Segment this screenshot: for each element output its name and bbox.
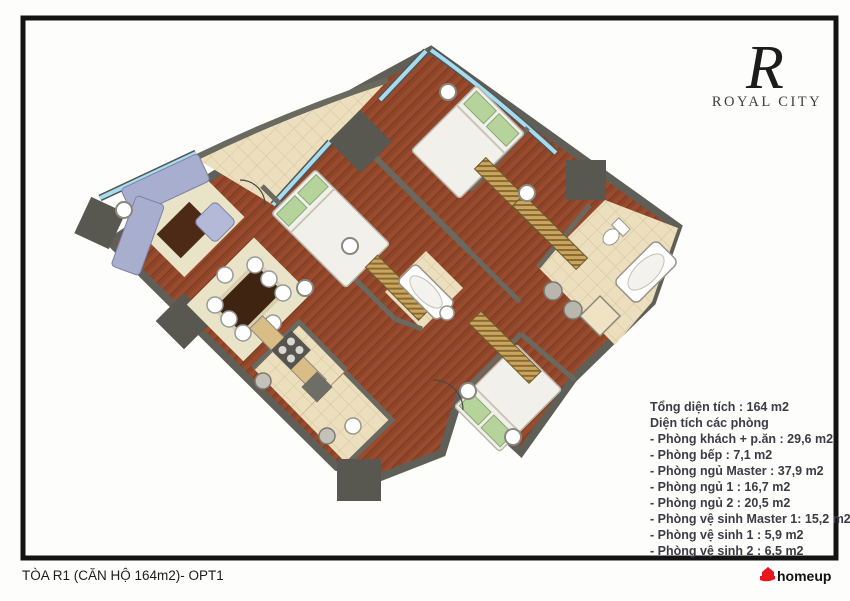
svg-text:- Phòng khách + p.ăn : 29,6 m2: - Phòng khách + p.ăn : 29,6 m2 bbox=[650, 432, 833, 446]
svg-text:- Phòng vệ sinh 1 : 5,9 m2: - Phòng vệ sinh 1 : 5,9 m2 bbox=[650, 528, 804, 542]
svg-text:R: R bbox=[745, 34, 784, 102]
svg-text:- Phòng ngủ Master : 37,9 m2: - Phòng ngủ Master : 37,9 m2 bbox=[650, 464, 824, 478]
svg-text:Diện tích các phòng: Diện tích các phòng bbox=[650, 416, 769, 430]
svg-text:- Phòng vệ sinh Master 1: 15,2: - Phòng vệ sinh Master 1: 15,2 m2 bbox=[650, 512, 850, 526]
svg-text:- Phòng ngủ 2 : 20,5 m2: - Phòng ngủ 2 : 20,5 m2 bbox=[650, 496, 790, 510]
svg-text:- Phòng ngủ 1 : 16,7 m2: - Phòng ngủ 1 : 16,7 m2 bbox=[650, 480, 790, 494]
svg-text:Tổng diện tích : 164 m2: Tổng diện tích : 164 m2 bbox=[650, 400, 789, 414]
svg-text:- Phòng bếp : 7,1 m2: - Phòng bếp : 7,1 m2 bbox=[650, 448, 772, 462]
svg-text:- Phòng vệ sinh 2 : 6,5 m2: - Phòng vệ sinh 2 : 6,5 m2 bbox=[650, 544, 804, 558]
svg-text:homeup: homeup bbox=[777, 568, 831, 584]
svg-text:ROYAL CITY: ROYAL CITY bbox=[712, 94, 822, 110]
svg-text:TÒA R1 (CĂN HỘ 164m2)- OPT1: TÒA R1 (CĂN HỘ 164m2)- OPT1 bbox=[22, 568, 224, 583]
